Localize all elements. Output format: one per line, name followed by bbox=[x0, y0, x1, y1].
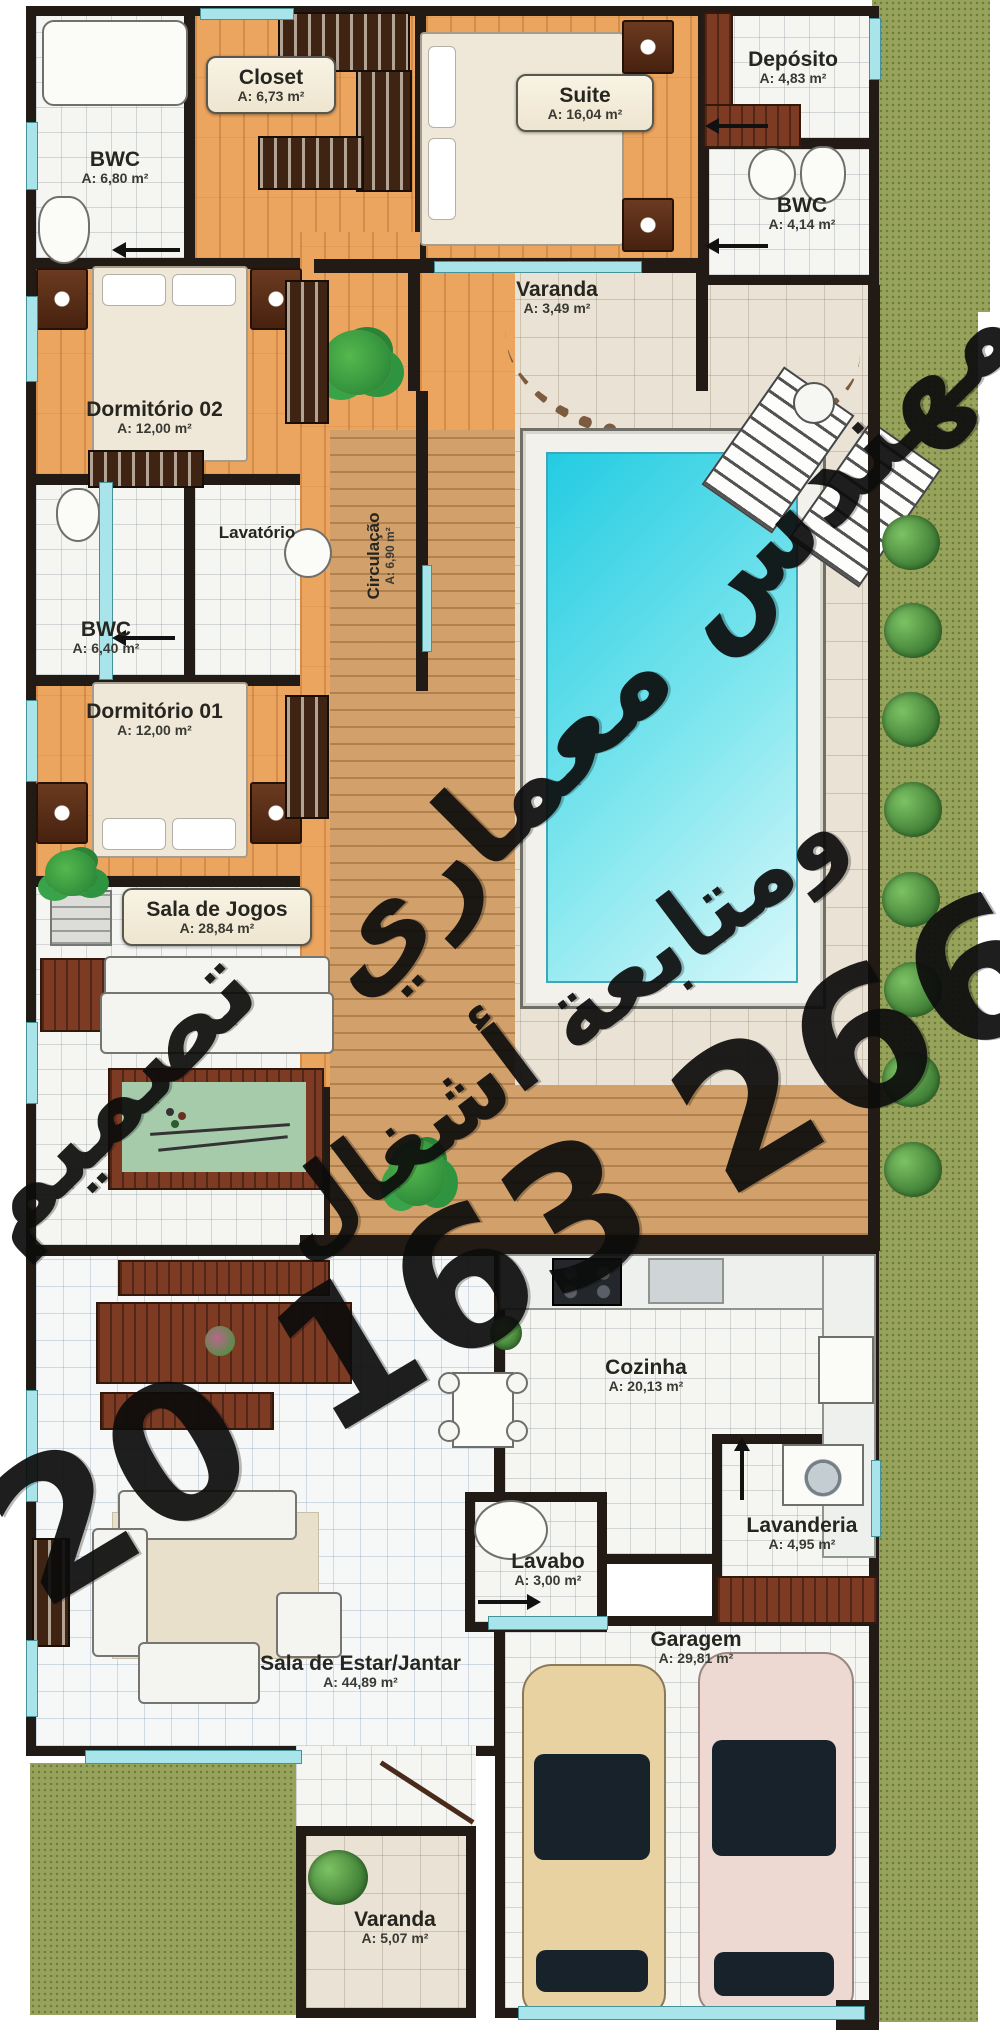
window-strip bbox=[26, 296, 38, 382]
grass-bottom-left bbox=[30, 1763, 303, 2015]
room-label-circulacao: Circulação A: 6,90 m² bbox=[365, 471, 397, 641]
room-area: A: 12,00 m² bbox=[62, 421, 247, 436]
bush bbox=[308, 1850, 368, 1905]
car-windshield bbox=[712, 1740, 836, 1856]
room-area: A: 20,13 m² bbox=[570, 1379, 722, 1394]
room-label-bwc-mid: BWC A: 6,40 m² bbox=[46, 618, 166, 656]
nightstand bbox=[622, 198, 674, 252]
wall bbox=[696, 273, 708, 391]
room-label-varanda-top: Varanda A: 3,49 m² bbox=[486, 278, 628, 316]
room-area: A: 44,89 m² bbox=[248, 1675, 473, 1690]
room-area: A: 6,40 m² bbox=[46, 641, 166, 656]
garden-bush bbox=[884, 603, 942, 658]
garden-bush bbox=[884, 782, 942, 837]
room-label-bwc-right: BWC A: 4,14 m² bbox=[746, 194, 858, 232]
pillow bbox=[102, 818, 166, 850]
room-area: A: 6,80 m² bbox=[60, 171, 170, 186]
room-area: A: 6,73 m² bbox=[212, 89, 330, 104]
room-name: Varanda bbox=[334, 1908, 456, 1931]
room-label-lavanderia: Lavanderia A: 4,95 m² bbox=[728, 1514, 876, 1552]
door-arrow bbox=[718, 124, 768, 128]
floor-plan: BWC A: 6,80 m² Closet A: 6,73 m² Suite A… bbox=[0, 0, 1000, 2034]
room-name: Garagem bbox=[620, 1628, 772, 1651]
door-arrow bbox=[718, 244, 768, 248]
window-strip bbox=[26, 122, 38, 190]
wardrobe bbox=[285, 695, 329, 819]
room-area: A: 4,14 m² bbox=[746, 217, 858, 232]
pillow bbox=[102, 274, 166, 306]
room-area: A: 5,07 m² bbox=[334, 1931, 456, 1946]
toilet-icon bbox=[38, 196, 90, 264]
pillow bbox=[428, 138, 456, 220]
car-rear-glass bbox=[714, 1952, 834, 1996]
tree bbox=[322, 330, 392, 395]
pillow bbox=[172, 274, 236, 306]
room-area: A: 3,00 m² bbox=[492, 1573, 604, 1588]
garden-bush bbox=[882, 692, 940, 747]
nightstand bbox=[36, 268, 88, 330]
window-strip bbox=[434, 261, 642, 273]
window-strip bbox=[422, 565, 432, 652]
room-name: Lavabo bbox=[492, 1550, 604, 1573]
room-name: Varanda bbox=[486, 278, 628, 301]
bathtub bbox=[42, 20, 188, 106]
room-label-lavabo: Lavabo A: 3,00 m² bbox=[492, 1550, 604, 1588]
room-name: Circulação bbox=[365, 471, 384, 641]
door-arrow bbox=[740, 1450, 744, 1500]
window-strip bbox=[26, 1640, 38, 1717]
door-arrow bbox=[125, 248, 180, 252]
room-label-varanda-bottom: Varanda A: 5,07 m² bbox=[334, 1908, 456, 1946]
window-strip bbox=[85, 1750, 302, 1764]
room-label-suite: Suite A: 16,04 m² bbox=[516, 74, 654, 132]
shelf-unit bbox=[50, 890, 112, 946]
room-label-bwc-top: BWC A: 6,80 m² bbox=[60, 148, 170, 186]
car-windshield bbox=[534, 1754, 650, 1860]
room-name: Depósito bbox=[726, 48, 860, 71]
room-name: BWC bbox=[60, 148, 170, 171]
nightstand bbox=[622, 20, 674, 74]
garage-door-strip bbox=[518, 2006, 865, 2020]
room-name: BWC bbox=[746, 194, 858, 217]
room-name: Sala de Estar/Jantar bbox=[248, 1652, 473, 1675]
pillow bbox=[428, 46, 456, 128]
room-label-lavatorio: Lavatório bbox=[190, 524, 324, 543]
sink-icon bbox=[748, 148, 796, 200]
room-name: Cozinha bbox=[570, 1356, 722, 1379]
room-name: BWC bbox=[46, 618, 166, 641]
room-name: Lavatório bbox=[190, 524, 324, 543]
room-label-cozinha: Cozinha A: 20,13 m² bbox=[570, 1356, 722, 1394]
wardrobe bbox=[258, 136, 364, 190]
door-arrow bbox=[478, 1600, 528, 1604]
laundry-cabinet bbox=[716, 1576, 878, 1624]
nightstand bbox=[36, 782, 88, 844]
car-rear-glass bbox=[536, 1950, 648, 1992]
wardrobe bbox=[356, 70, 412, 192]
fridge-icon bbox=[818, 1336, 874, 1404]
room-area: A: 3,49 m² bbox=[486, 301, 628, 316]
window-strip bbox=[200, 8, 294, 20]
stool bbox=[506, 1420, 528, 1442]
room-label-sala-de-jogos: Sala de Jogos A: 28,84 m² bbox=[122, 888, 312, 946]
room-name: Dormitório 01 bbox=[62, 700, 247, 723]
tree bbox=[45, 850, 97, 896]
room-label-dormitorio-02: Dormitório 02 A: 12,00 m² bbox=[62, 398, 247, 436]
room-area: A: 6,90 m² bbox=[384, 471, 397, 641]
room-name: Suite bbox=[522, 84, 648, 107]
room-area: A: 16,04 m² bbox=[522, 107, 648, 122]
room-label-sala-estar-jantar: Sala de Estar/Jantar A: 44,89 m² bbox=[248, 1652, 473, 1690]
wall bbox=[408, 273, 420, 391]
sofa bbox=[138, 1642, 260, 1704]
room-name: Lavanderia bbox=[728, 1514, 876, 1537]
room-label-closet: Closet A: 6,73 m² bbox=[206, 56, 336, 114]
room-name: Sala de Jogos bbox=[128, 898, 306, 921]
window-strip bbox=[26, 700, 38, 782]
window-strip bbox=[488, 1616, 608, 1630]
grass-top-right bbox=[872, 0, 990, 312]
room-area: A: 29,81 m² bbox=[620, 1651, 772, 1666]
room-label-dormitorio-01: Dormitório 01 A: 12,00 m² bbox=[62, 700, 247, 738]
entry-tile bbox=[296, 1746, 476, 1830]
room-area: A: 4,83 m² bbox=[726, 71, 860, 86]
room-area: A: 4,95 m² bbox=[728, 1537, 876, 1552]
washing-machine-icon bbox=[782, 1444, 864, 1506]
kitchen-counter bbox=[822, 1254, 876, 1558]
room-label-deposito: Depósito A: 4,83 m² bbox=[726, 48, 860, 86]
room-name: Dormitório 02 bbox=[62, 398, 247, 421]
room-label-garagem: Garagem A: 29,81 m² bbox=[620, 1628, 772, 1666]
toilet-icon bbox=[56, 488, 100, 542]
window-strip bbox=[869, 18, 881, 80]
pillow bbox=[172, 818, 236, 850]
room-area: A: 12,00 m² bbox=[62, 723, 247, 738]
room-name: Closet bbox=[212, 66, 330, 89]
wardrobe bbox=[285, 280, 329, 424]
armchair bbox=[276, 1592, 342, 1658]
